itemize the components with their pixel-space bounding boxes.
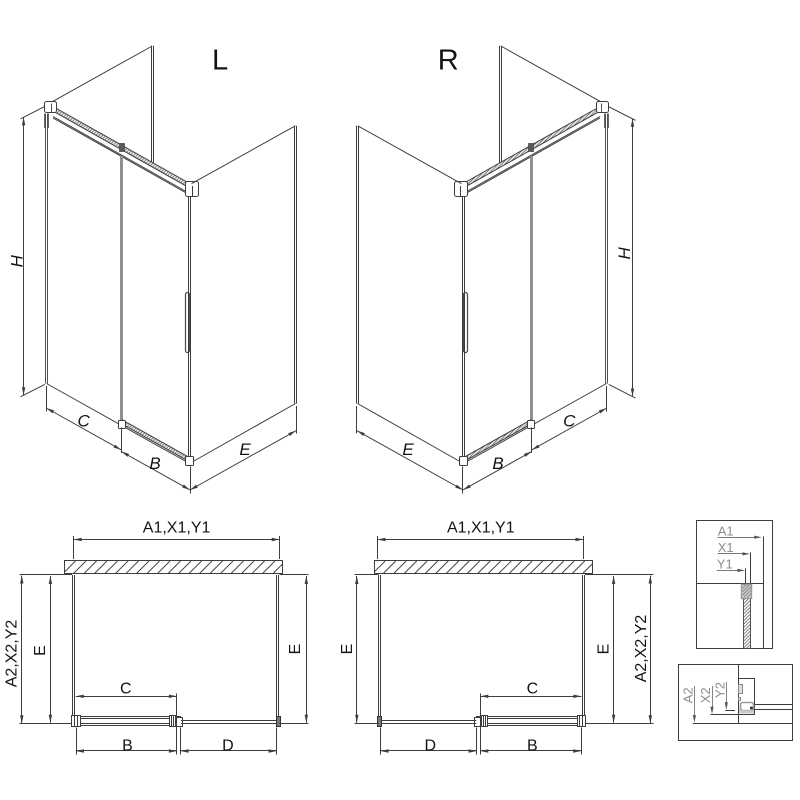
svg-text:X1: X1 <box>718 540 734 555</box>
svg-text:A2,X2,Y2: A2,X2,Y2 <box>633 615 650 683</box>
svg-text:C: C <box>78 411 91 430</box>
svg-text:E: E <box>287 644 304 655</box>
svg-text:B: B <box>492 454 503 473</box>
svg-text:Y2: Y2 <box>713 682 728 698</box>
svg-text:D: D <box>425 737 437 754</box>
svg-text:C: C <box>563 411 576 430</box>
svg-text:A1: A1 <box>718 523 734 538</box>
svg-text:X2: X2 <box>698 687 713 703</box>
svg-text:D: D <box>222 737 234 754</box>
svg-text:E: E <box>596 644 613 655</box>
svg-text:E: E <box>239 440 251 459</box>
svg-text:H: H <box>7 254 26 267</box>
svg-text:B: B <box>122 737 133 754</box>
svg-text:E: E <box>339 644 356 655</box>
svg-text:B: B <box>527 737 538 754</box>
svg-text:B: B <box>149 454 160 473</box>
svg-text:E: E <box>402 440 414 459</box>
svg-text:A1,X1,Y1: A1,X1,Y1 <box>447 519 515 536</box>
svg-text:Y1: Y1 <box>717 557 733 572</box>
svg-text:C: C <box>527 681 539 698</box>
svg-text:R: R <box>438 45 459 77</box>
svg-text:A2,X2,Y2: A2,X2,Y2 <box>4 620 21 688</box>
svg-text:E: E <box>32 645 49 656</box>
svg-text:A2: A2 <box>681 687 696 703</box>
svg-text:L: L <box>212 44 228 76</box>
svg-text:H: H <box>615 246 634 259</box>
svg-text:A1,X1,Y1: A1,X1,Y1 <box>143 519 211 536</box>
svg-text:C: C <box>120 681 132 698</box>
